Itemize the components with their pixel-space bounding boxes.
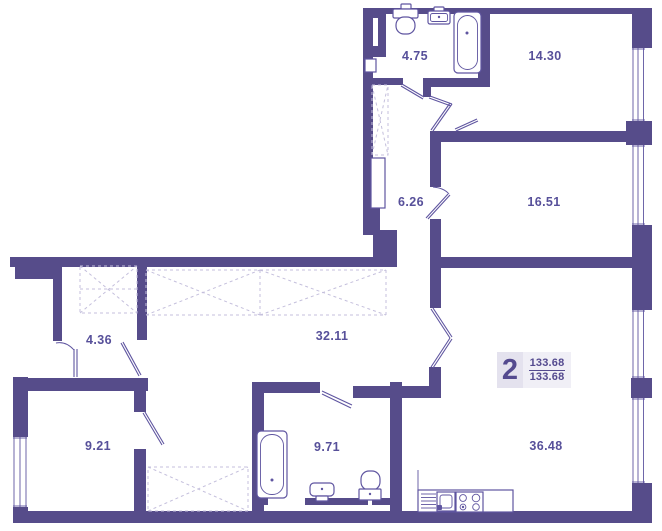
- door-bathroom-main: [322, 391, 352, 408]
- ventilation-shaft: [371, 158, 385, 208]
- room-area-label-entry-hall: 4.36: [86, 333, 112, 347]
- wardrobes: [80, 85, 388, 511]
- room-area-label-bathroom-main: 9.71: [314, 440, 340, 454]
- area-living: 133.68: [530, 371, 565, 384]
- apartment-areas: 133.68 133.68: [523, 352, 571, 388]
- room-area-label-corridor: 32.11: [316, 329, 349, 343]
- wardrobe-corridor-top: [146, 270, 386, 315]
- apartment-badge: 2 133.68 133.68: [497, 352, 571, 388]
- room-area-label-bedroom-top: 14.30: [528, 49, 561, 63]
- toilet-icon: [393, 4, 418, 34]
- room-area-label-living-kitchen: 36.48: [529, 439, 562, 453]
- door-bedroom-top: [429, 96, 478, 131]
- rooms-count: 2: [497, 352, 523, 388]
- window-left: [13, 437, 27, 507]
- door-bathroom-top: [401, 84, 424, 99]
- door-entry-hall: [121, 342, 141, 376]
- window-right-4: [632, 398, 645, 483]
- wardrobe-hallway-upper: [372, 85, 388, 155]
- area-total: 133.68: [529, 357, 566, 371]
- toilet-icon: [359, 471, 381, 500]
- room-area-label-bedroom-right: 16.51: [527, 195, 560, 209]
- window-top-right-1: [632, 48, 645, 121]
- door-entry: [56, 343, 77, 377]
- door-bedroom-right: [426, 187, 450, 219]
- window-right-2: [632, 145, 645, 225]
- wall-niche: [365, 59, 376, 72]
- window-right-3: [632, 310, 645, 378]
- room-area-label-room-left: 9.21: [85, 439, 111, 453]
- stove-icon: [456, 492, 483, 512]
- room-area-label-bathroom-top: 4.75: [402, 49, 428, 63]
- door-living-double: [431, 308, 452, 368]
- wardrobe-corridor-bottom: [148, 467, 248, 511]
- room-area-label-hallway-upper: 6.26: [398, 195, 424, 209]
- door-room-left: [143, 412, 164, 445]
- wardrobe-entry-hall: [80, 266, 137, 313]
- floor-plan: 4.75 14.30 6.26 16.51 4.36 32.11 9.21 9.…: [0, 0, 662, 531]
- bathtub-icon: [257, 431, 287, 498]
- bathtub-icon: [454, 12, 481, 73]
- kitchen-counter: [418, 470, 513, 512]
